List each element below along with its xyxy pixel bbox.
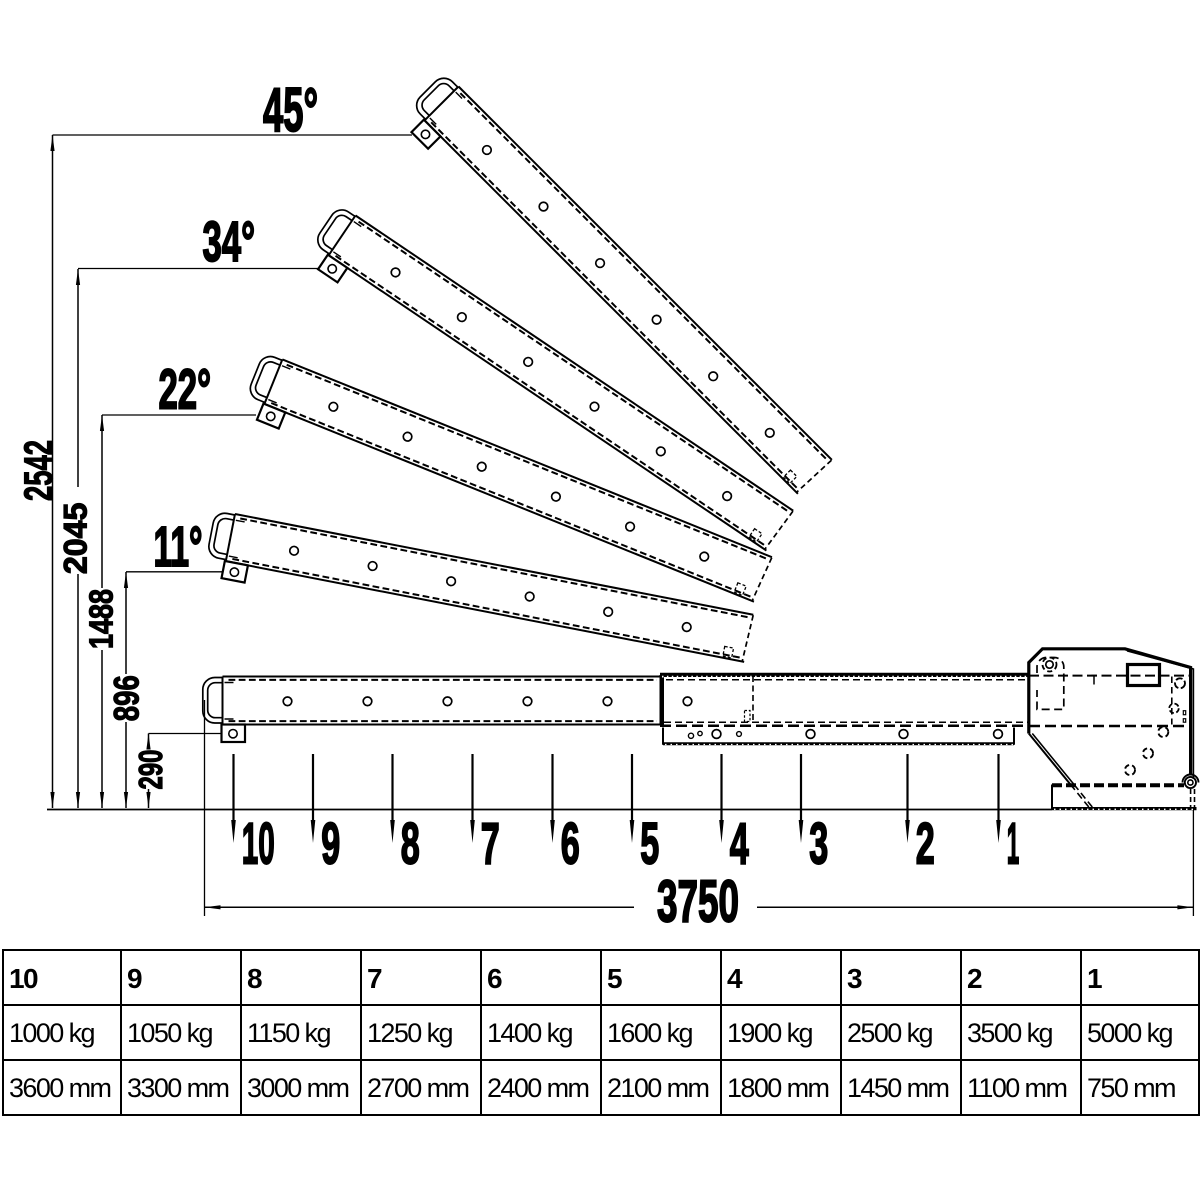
svg-text:3: 3 bbox=[809, 812, 828, 877]
svg-text:22°: 22° bbox=[159, 358, 212, 422]
svg-text:5: 5 bbox=[640, 812, 659, 877]
svg-text:9: 9 bbox=[321, 812, 340, 877]
svg-text:6: 6 bbox=[561, 812, 580, 877]
svg-text:2542: 2542 bbox=[17, 440, 61, 501]
svg-text:896: 896 bbox=[108, 675, 147, 721]
svg-text:45°: 45° bbox=[263, 76, 318, 145]
svg-text:4: 4 bbox=[730, 812, 749, 877]
svg-text:11°: 11° bbox=[154, 515, 203, 579]
svg-text:8: 8 bbox=[401, 812, 420, 877]
svg-text:2: 2 bbox=[916, 812, 935, 877]
svg-text:7: 7 bbox=[481, 812, 500, 877]
svg-text:1: 1 bbox=[1007, 812, 1020, 877]
svg-text:10: 10 bbox=[242, 812, 275, 877]
svg-text:290: 290 bbox=[133, 750, 170, 790]
svg-text:2045: 2045 bbox=[58, 503, 94, 575]
svg-text:3750: 3750 bbox=[657, 869, 739, 935]
svg-text:34°: 34° bbox=[203, 210, 256, 274]
svg-text:1488: 1488 bbox=[83, 589, 120, 649]
